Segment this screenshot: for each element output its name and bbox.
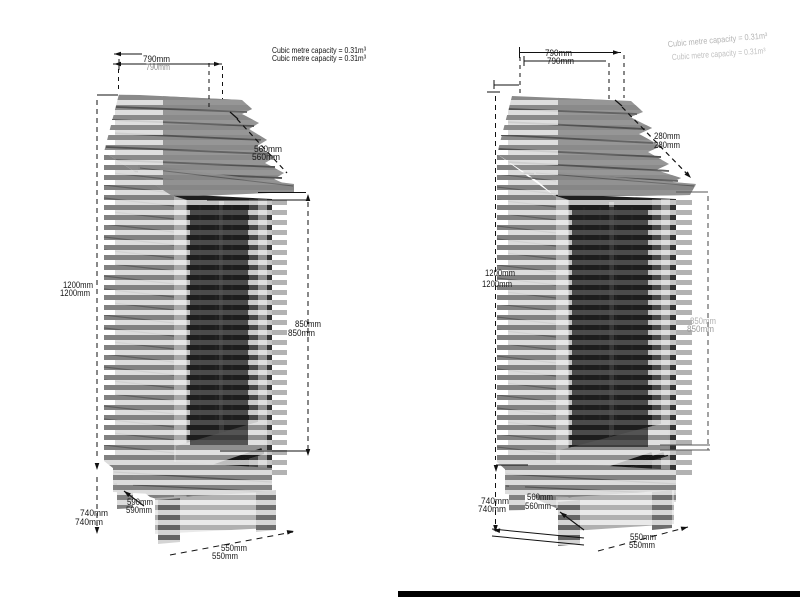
svg-text:Cubic metre capacity = 0.31m³: Cubic metre capacity = 0.31m³: [272, 53, 366, 63]
svg-text:550mm: 550mm: [212, 551, 238, 561]
svg-text:560mm: 560mm: [525, 501, 551, 511]
svg-text:790mm: 790mm: [146, 62, 170, 72]
svg-text:Cubic metre capacity = 0.31m³: Cubic metre capacity = 0.31m³: [671, 45, 766, 62]
svg-text:560mm: 560mm: [252, 152, 280, 162]
svg-text:850mm: 850mm: [288, 328, 315, 338]
svg-text:740mm: 740mm: [478, 504, 506, 514]
svg-text:740mm: 740mm: [75, 517, 103, 527]
svg-text:850mm: 850mm: [687, 324, 714, 334]
svg-text:550mm: 550mm: [629, 540, 655, 550]
svg-text:590mm: 590mm: [126, 505, 152, 515]
svg-text:1200mm: 1200mm: [485, 268, 515, 278]
svg-text:790mm: 790mm: [547, 56, 574, 66]
svg-text:280mm: 280mm: [654, 140, 680, 150]
svg-text:1200mm: 1200mm: [60, 288, 90, 298]
svg-text:1200mm: 1200mm: [482, 279, 512, 289]
